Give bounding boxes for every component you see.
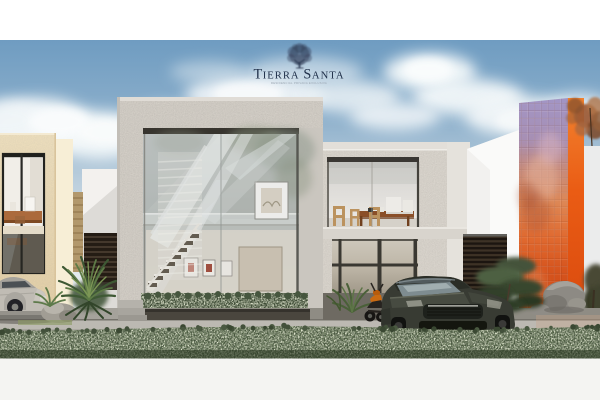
svg-text:RESIDENCIAL PRIVADA EXCLUSIVA: RESIDENCIAL PRIVADA EXCLUSIVA <box>271 81 327 85</box>
